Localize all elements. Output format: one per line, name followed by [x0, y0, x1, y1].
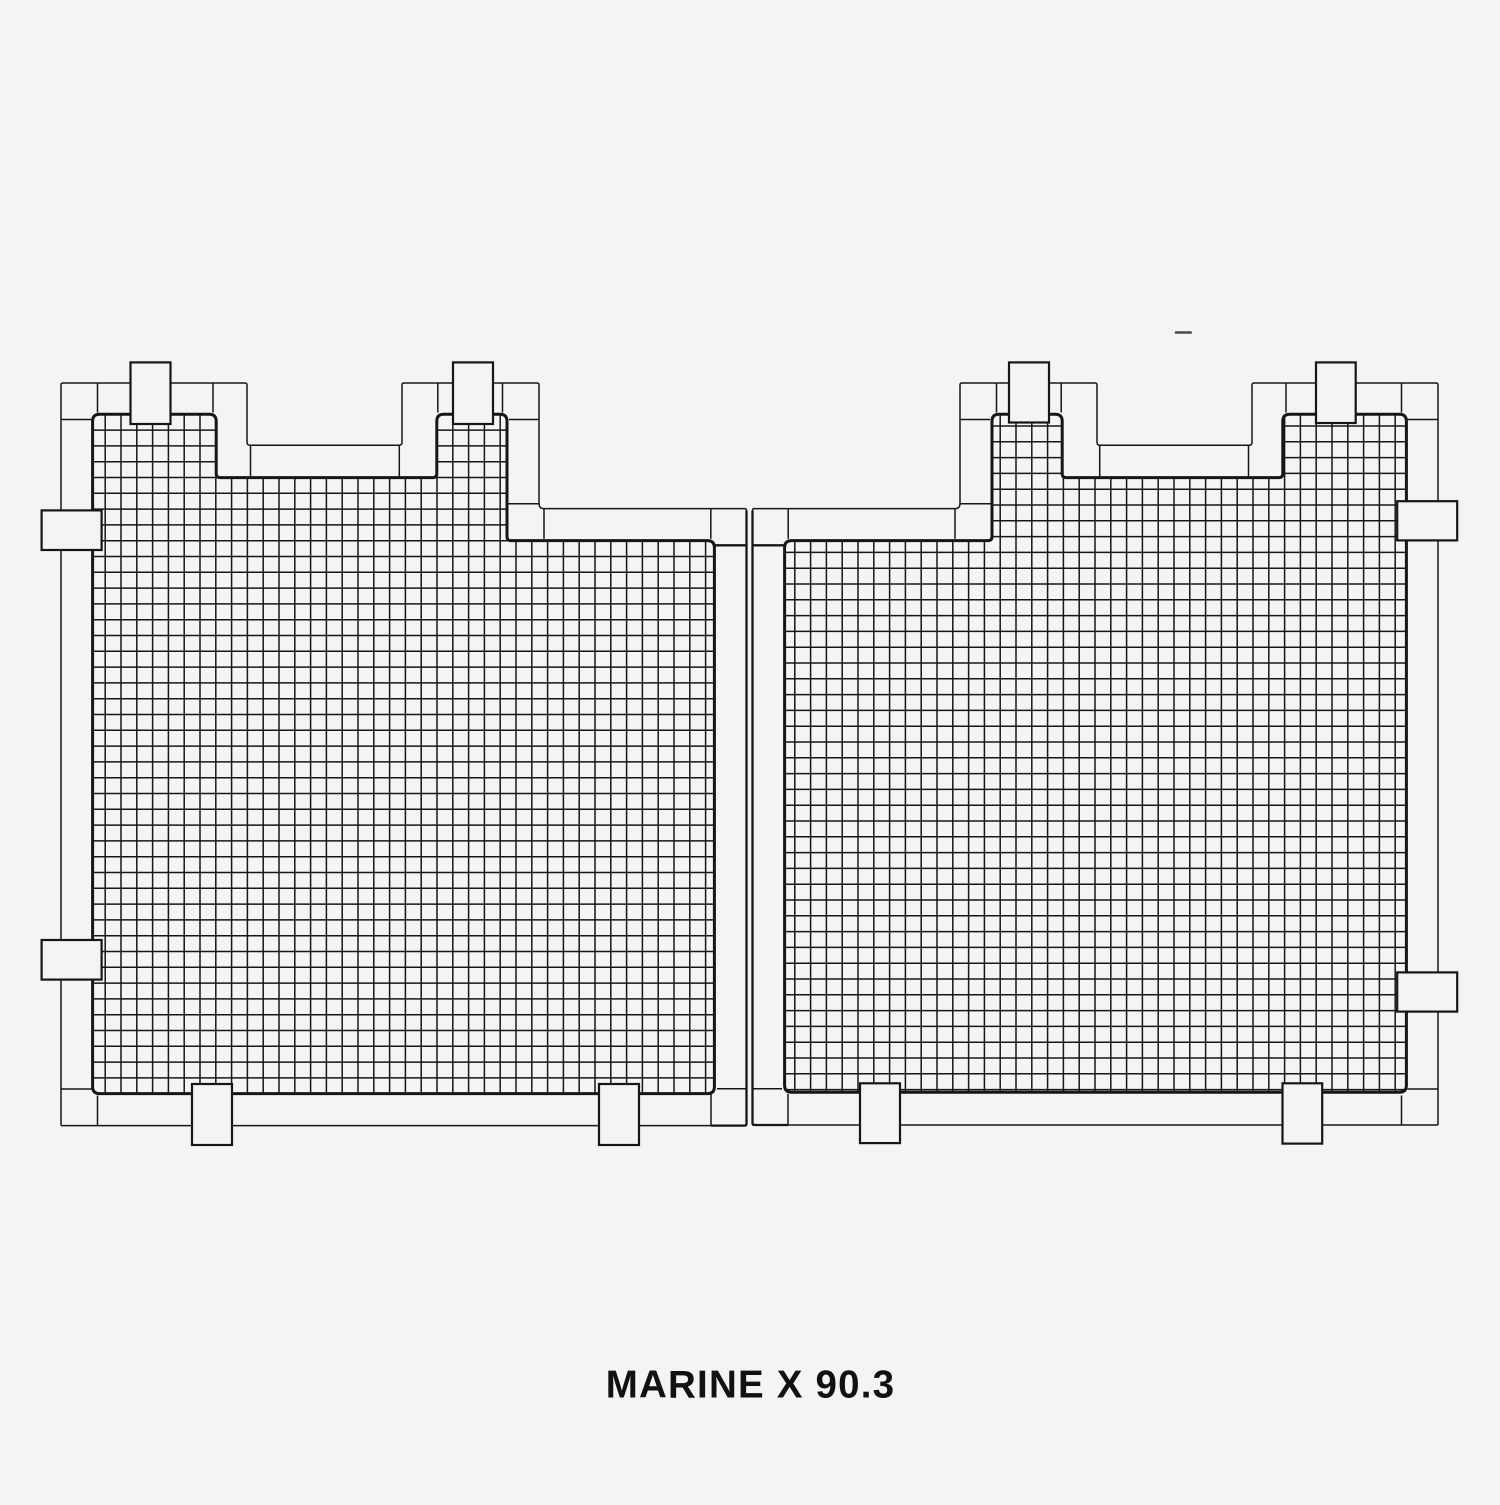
- svg-text:MARINE X 90.3: MARINE X 90.3: [606, 1364, 895, 1407]
